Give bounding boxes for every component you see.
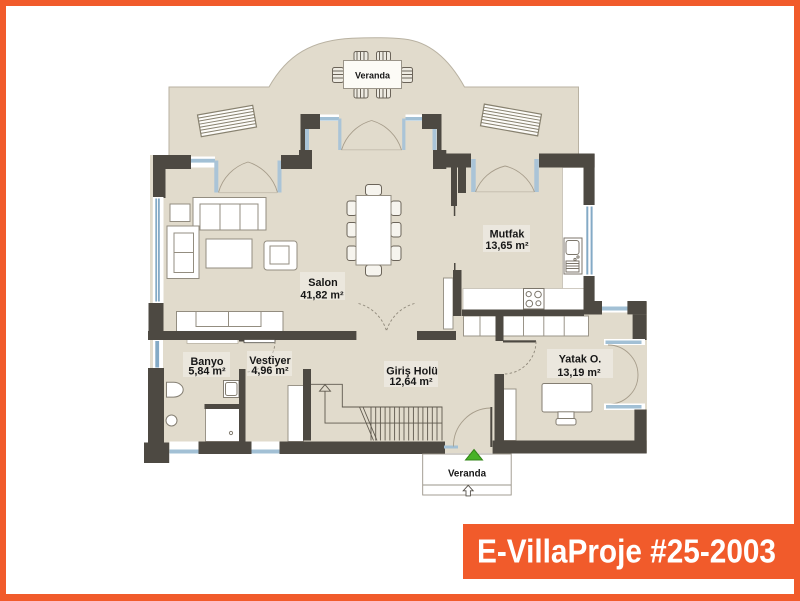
svg-text:13,65 m²: 13,65 m² <box>485 240 529 252</box>
svg-text:Yatak O.: Yatak O. <box>559 354 602 366</box>
svg-text:Veranda: Veranda <box>355 71 391 81</box>
svg-text:Mutfak: Mutfak <box>490 229 526 241</box>
svg-text:Salon: Salon <box>308 277 337 289</box>
svg-text:Veranda: Veranda <box>448 469 487 480</box>
svg-text:E-VillaProje #25-2003: E-VillaProje #25-2003 <box>477 534 776 571</box>
svg-text:13,19 m²: 13,19 m² <box>557 367 601 379</box>
svg-text:41,82 m²: 41,82 m² <box>300 290 344 302</box>
svg-text:12,64 m²: 12,64 m² <box>389 376 433 388</box>
svg-text:5,84 m²: 5,84 m² <box>188 366 226 378</box>
svg-text:4,96 m²: 4,96 m² <box>251 365 289 377</box>
